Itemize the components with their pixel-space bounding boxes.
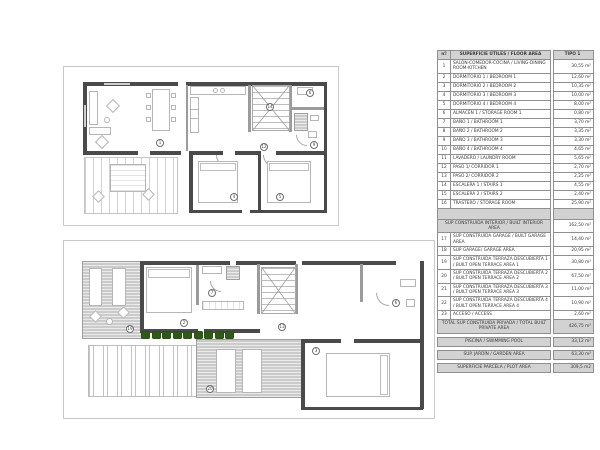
built-area-rows: 17 SUP CONSTRUIDA GARAGE / BUILT GARAGE …: [437, 232, 594, 320]
armchair: [106, 99, 120, 113]
chair: [171, 117, 176, 122]
plot-row: SUPERFICIE PARCELA / PLOT AREA 309,5 m2: [437, 363, 594, 373]
sink-icon: [213, 88, 218, 93]
chair: [146, 93, 151, 98]
wall-segment: [193, 151, 223, 155]
row-number: 22: [437, 296, 451, 311]
private-total-row: TOTAL SUP CONSTRUIDA PRIVADA / TOTAL BUI…: [437, 319, 594, 334]
stove-icon: [220, 88, 225, 93]
room-number-marker: 13: [278, 323, 286, 331]
floor-plan-upper: 1 14 6 9 12 4 5: [63, 66, 339, 226]
row-label: SUP CONSTRUIDA TERRAZA DESCUBIERTA 2 / B…: [451, 269, 551, 284]
room-number-marker: 1: [156, 139, 164, 147]
chair: [146, 105, 151, 110]
row-number: 19: [437, 255, 451, 270]
door-arc: [296, 135, 307, 146]
wall-segment: [250, 210, 327, 214]
row-label: SUP CONSTRUIDA GARAGE / BUILT GARAGE ARE…: [451, 232, 551, 247]
kitchen-counter: [190, 86, 246, 95]
wall-segment: [186, 82, 248, 86]
wall-segment: [83, 82, 178, 86]
row-value: 11,00 m²: [553, 283, 594, 298]
wall-segment: [258, 155, 261, 210]
chair: [171, 93, 176, 98]
partition-wall: [196, 265, 199, 305]
room-number-marker: 4: [230, 193, 238, 201]
pool-value: 33,12 m²: [553, 337, 594, 347]
plot-label: SUPERFICIE PARCELA / PLOT AREA: [437, 363, 551, 373]
wall-segment: [302, 261, 396, 265]
wall-segment: [420, 261, 424, 409]
wall-segment: [140, 261, 230, 265]
garden-paving: [88, 345, 198, 397]
dining-table: [152, 89, 170, 131]
wall-segment: [189, 210, 242, 214]
bush-icon: [215, 331, 224, 339]
sink-icon: [400, 279, 416, 287]
table-row: 1 SALÓN-COMEDOR-COCINA / LIVING-DINING R…: [437, 59, 594, 74]
pool-label: PISCINA / SWIMMING POOL: [437, 337, 551, 347]
partition-wall: [257, 264, 260, 314]
coffee-table: [104, 117, 110, 123]
hedge: [141, 331, 236, 339]
window: [104, 83, 130, 85]
garden-value: 63,30 m²: [553, 350, 594, 360]
wall-segment: [291, 82, 327, 86]
stairs-icon: [261, 267, 296, 314]
plot-value: 309,5 m2: [553, 363, 594, 373]
garden-row: SUP. JARDÍN / GARDEN AREA 63,30 m²: [437, 350, 594, 360]
row-value: 10,90 m²: [553, 296, 594, 311]
wall-segment: [189, 151, 193, 213]
row-value: 14,40 m²: [553, 232, 594, 247]
row-label: SUP CONSTRUIDA TERRAZA DESCUBIERTA 3 / B…: [451, 283, 551, 298]
wall-segment: [301, 339, 341, 343]
row-label: SALÓN-COMEDOR-COCINA / LIVING-DINING ROO…: [451, 59, 551, 74]
bush-icon: [162, 331, 171, 339]
room-number-marker: 6: [306, 89, 314, 97]
window: [84, 105, 86, 127]
stairs-cross-lines: [262, 268, 295, 313]
interior-total-value: 162,50 m²: [553, 219, 594, 234]
bed-pillow: [380, 355, 388, 395]
room-number-marker: 2: [180, 319, 188, 327]
toilet-icon: [406, 299, 415, 307]
bush-icon: [225, 331, 234, 339]
row-number: 21: [437, 283, 451, 298]
bush-icon: [183, 331, 192, 339]
wall-segment: [354, 339, 423, 343]
room-number-marker: 12: [260, 143, 268, 151]
table-row: 22 SUP CONSTRUIDA TERRAZA DESCUBIERTA 4 …: [437, 296, 594, 311]
interior-total-label: SUP CONSTRUIDA INTERIOR / BUILT INTERIOR…: [437, 219, 551, 234]
coffee-table: [106, 318, 113, 325]
row-number: 1: [437, 59, 451, 74]
room-number-marker: 7: [208, 289, 216, 297]
room-number-marker: 9: [310, 141, 318, 149]
door-arc: [376, 293, 389, 306]
row-number: 17: [437, 232, 451, 247]
table-row: 21 SUP CONSTRUIDA TERRAZA DESCUBIERTA 3 …: [437, 283, 594, 298]
oven-icon: [190, 109, 199, 119]
bush-icon: [173, 331, 182, 339]
interior-total-row: SUP CONSTRUIDA INTERIOR / BUILT INTERIOR…: [437, 219, 594, 234]
bed-pillow: [200, 163, 236, 171]
floor-plan-ground: 19 2 7 13 6 3 20: [63, 240, 435, 419]
wall-segment: [276, 151, 324, 155]
shower: [226, 266, 240, 280]
sink-icon: [310, 115, 319, 121]
row-number: 20: [437, 269, 451, 284]
chair: [146, 117, 151, 122]
pergola-table: [110, 164, 146, 192]
bush-icon: [141, 331, 150, 339]
toilet-icon: [308, 131, 317, 138]
row-value: 30,55 m²: [553, 59, 594, 74]
sun-lounger: [89, 268, 102, 306]
floor-area-rows: 1 SALÓN-COMEDOR-COCINA / LIVING-DINING R…: [437, 59, 594, 209]
plan-sheet: 1 14 6 9 12 4 5: [0, 0, 600, 450]
chair: [171, 105, 176, 110]
sun-lounger: [242, 349, 262, 393]
private-total-label: TOTAL SUP CONSTRUIDA PRIVADA / TOTAL BUI…: [437, 319, 551, 334]
wardrobe: [202, 301, 244, 310]
bush-icon: [204, 331, 213, 339]
wall-segment: [150, 151, 181, 155]
wall-segment: [140, 261, 144, 333]
wall-segment: [324, 82, 328, 213]
wall-segment: [301, 407, 423, 411]
partition-wall: [186, 85, 188, 151]
sun-lounger: [216, 349, 236, 393]
room-number-marker: 19: [126, 325, 134, 333]
pool-row: PISCINA / SWIMMING POOL 33,12 m²: [437, 337, 594, 347]
sofa: [89, 127, 111, 135]
wall-segment: [235, 151, 261, 155]
table-row: 19 SUP CONSTRUIDA TERRAZA DESCUBIERTA 1 …: [437, 255, 594, 270]
partition-wall: [291, 107, 324, 110]
garden-label: SUP. JARDÍN / GARDEN AREA: [437, 350, 551, 360]
wall-segment: [83, 151, 138, 155]
sofa: [89, 91, 98, 125]
shower: [294, 113, 308, 131]
room-number-marker: 5: [276, 193, 284, 201]
table-row: 20 SUP CONSTRUIDA TERRAZA DESCUBIERTA 2 …: [437, 269, 594, 284]
vanity-counter: [202, 266, 222, 274]
room-number-marker: 6: [392, 299, 400, 307]
sun-lounger: [112, 268, 126, 306]
row-label: SUP CONSTRUIDA TERRAZA DESCUBIERTA 4 / B…: [451, 296, 551, 311]
row-value: 67,50 m²: [553, 269, 594, 284]
room-number-marker: 14: [266, 103, 274, 111]
partition-wall: [360, 264, 363, 302]
bush-icon: [152, 331, 161, 339]
armchair: [95, 135, 109, 149]
private-total-value: 426,75 m²: [553, 319, 594, 334]
bush-icon: [194, 331, 203, 339]
bed-pillow: [148, 269, 190, 278]
room-number-marker: 3: [312, 347, 320, 355]
room-number-marker: 20: [206, 385, 214, 393]
row-label: SUP CONSTRUIDA TERRAZA DESCUBIERTA 1 / B…: [451, 255, 551, 270]
bed-pillow: [269, 163, 309, 171]
row-value: 30,80 m²: [553, 255, 594, 270]
table-row: 17 SUP CONSTRUIDA GARAGE / BUILT GARAGE …: [437, 232, 594, 247]
partition-wall: [248, 85, 251, 132]
wall-segment: [236, 261, 296, 265]
areas-table: nº SUPERFICIE ÚTILES / FLOOR AREA TIPO 1…: [437, 50, 594, 373]
wall-segment: [301, 339, 305, 410]
